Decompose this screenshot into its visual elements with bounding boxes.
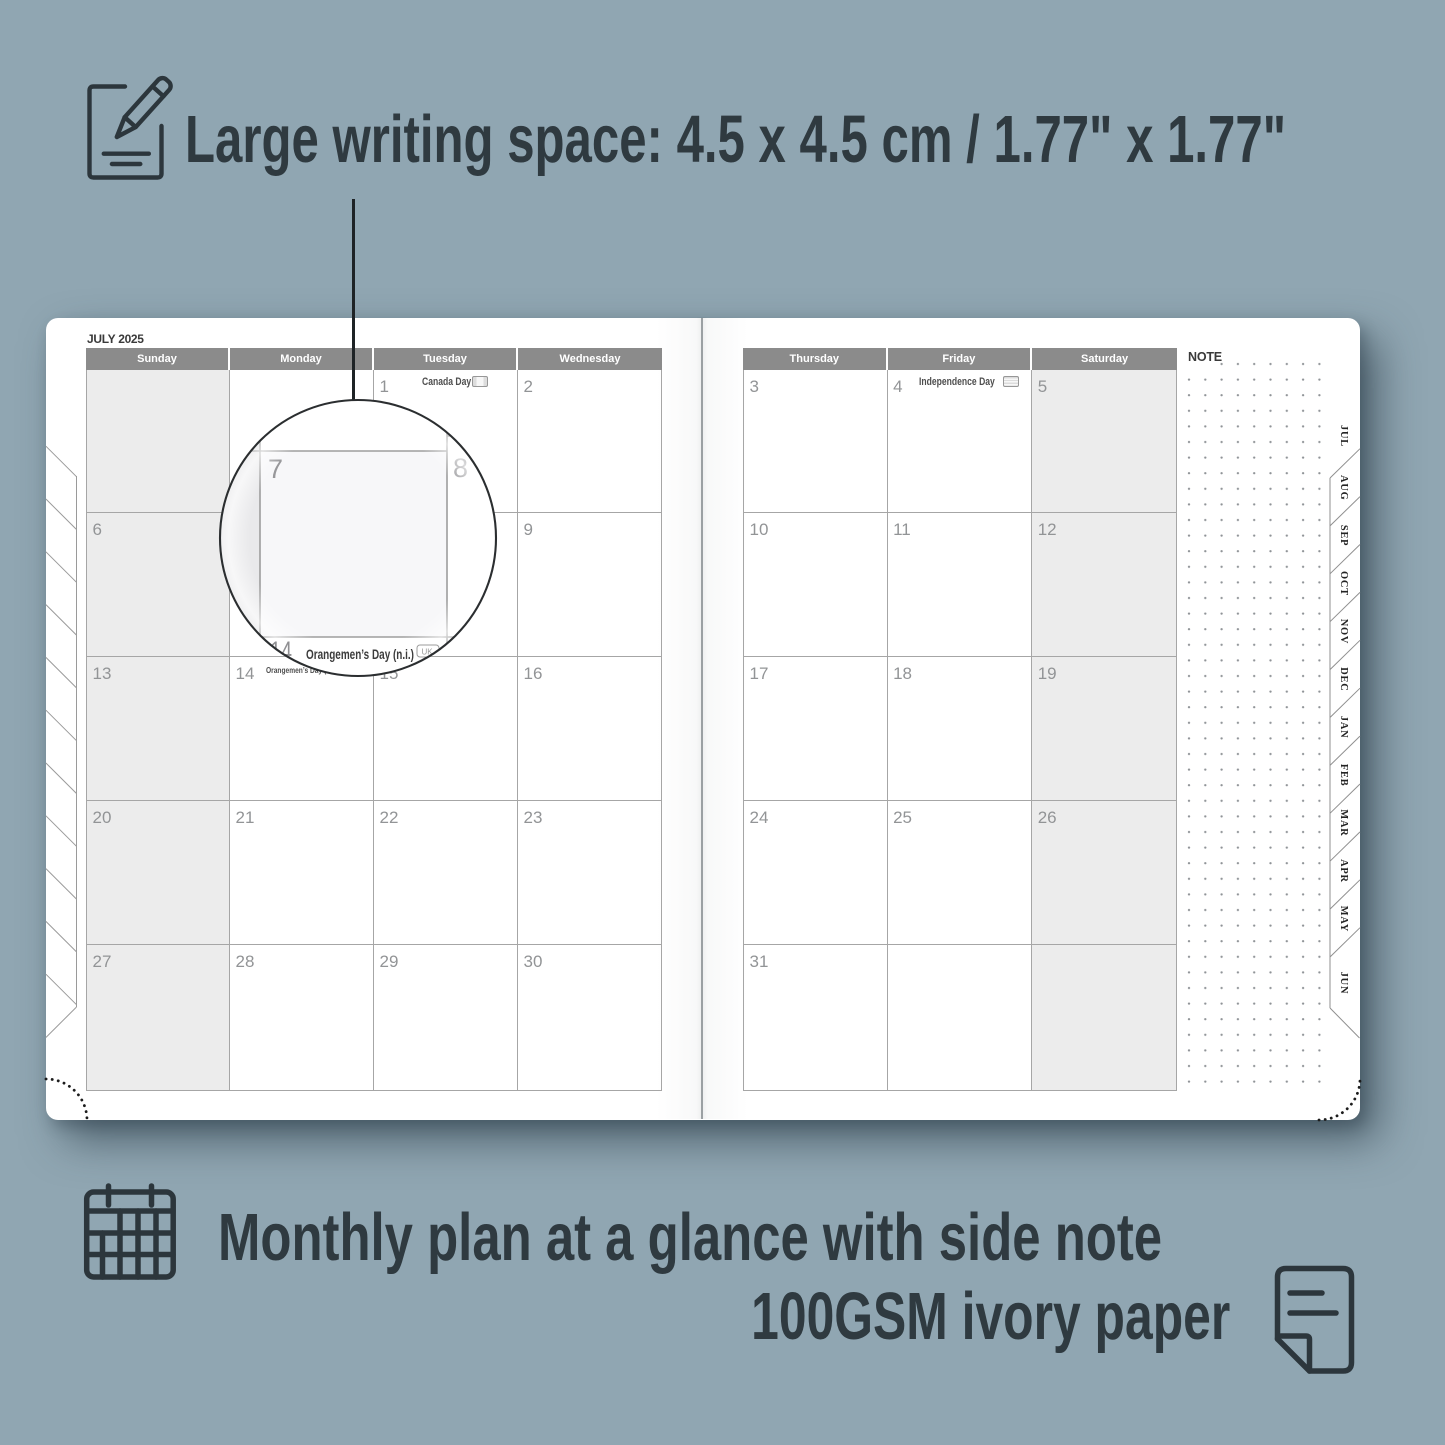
svg-text:APR: APR [1338, 859, 1349, 883]
svg-text:JAN: JAN [1338, 716, 1349, 739]
svg-text:FEB: FEB [1338, 764, 1349, 787]
svg-text:14: 14 [270, 636, 292, 666]
svg-text:Orangemen’s Day (n.i.): Orangemen’s Day (n.i.) [306, 646, 414, 662]
svg-text:NOV: NOV [1338, 619, 1349, 645]
svg-text:MAR: MAR [1338, 809, 1349, 836]
svg-text:MAY: MAY [1338, 906, 1349, 932]
svg-text:JUL: JUL [1338, 425, 1349, 447]
svg-text:SEP: SEP [1338, 525, 1349, 546]
svg-text:AUG: AUG [1338, 475, 1349, 501]
svg-text:OCT: OCT [1338, 571, 1349, 596]
svg-text:DEC: DEC [1338, 667, 1349, 691]
svg-text:JUN: JUN [1338, 972, 1349, 995]
